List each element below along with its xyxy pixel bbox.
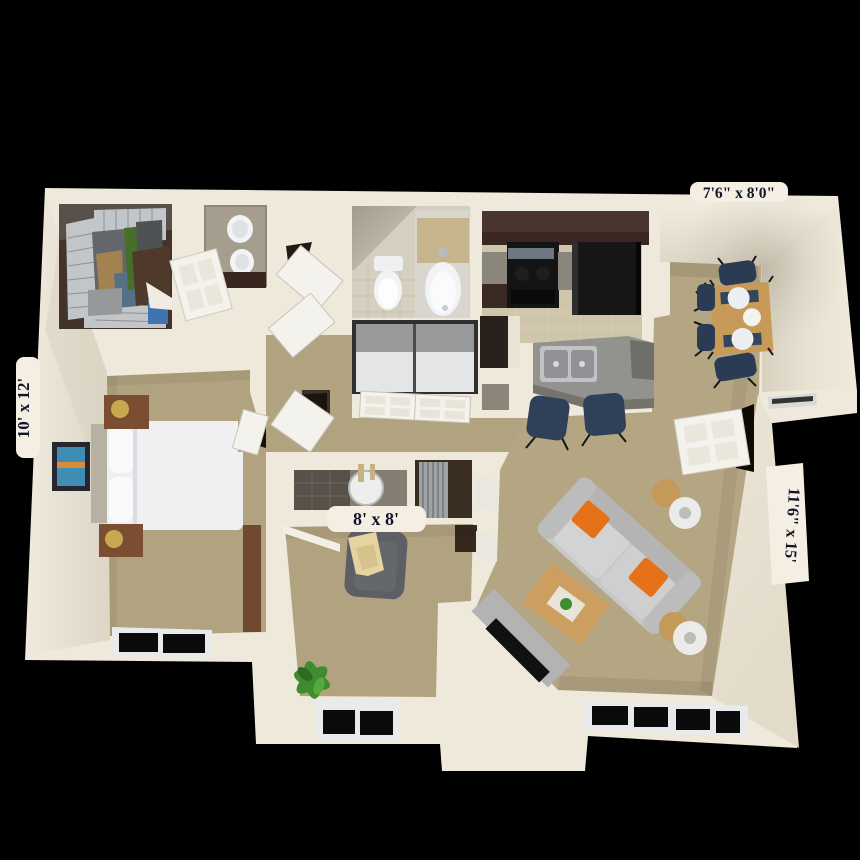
svg-text:8' x 8': 8' x 8' [353,509,399,529]
svg-text:10' x 12': 10' x 12' [14,378,33,438]
svg-text:11'6" x 15': 11'6" x 15' [781,487,804,563]
svg-text:7'6" x 8'0": 7'6" x 8'0" [703,185,775,202]
